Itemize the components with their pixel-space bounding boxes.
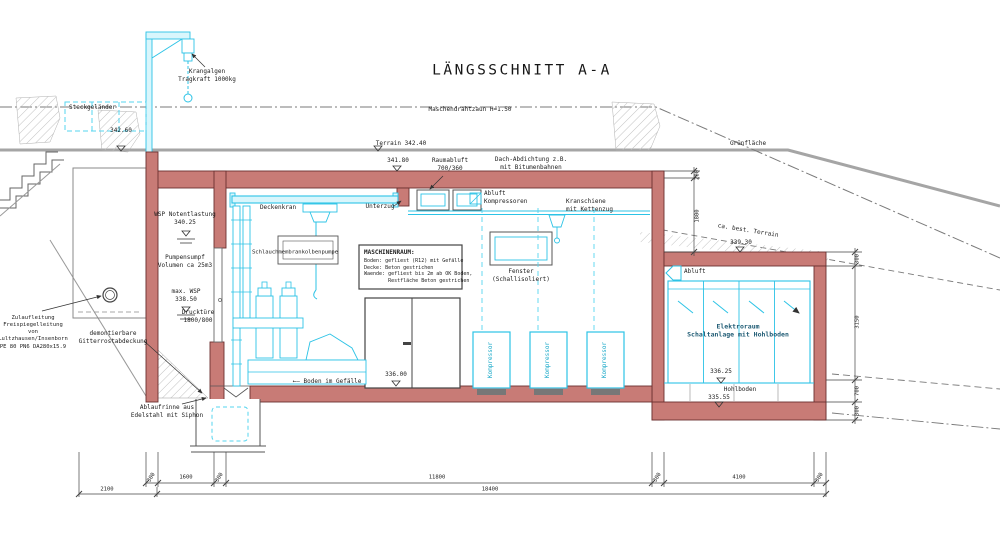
- crane-trolley: [303, 204, 337, 212]
- label-boden-gefaelle: ←– Boden im Gefälle: [293, 378, 362, 386]
- maschinenraum-title: MASCHINENRAUM:: [364, 249, 415, 257]
- level-342-60: 342.60: [110, 127, 132, 135]
- label-zulaufleitung: Zulaufleitung Freispiegelleitung von Lul…: [0, 315, 68, 351]
- label-pumpensumpf: Pumpensumpf Volumen ca 25m3: [158, 254, 212, 270]
- dim-right-700: 700: [854, 386, 861, 396]
- machine-room-right-wall: [652, 171, 664, 420]
- label-terrain: Terrain 342.40: [376, 140, 427, 148]
- hose-diaphragm-piston-pump: [231, 206, 366, 386]
- label-abluft: Abluft: [684, 268, 706, 276]
- crane-cable-hook: [314, 290, 317, 299]
- inlet-chamber: [50, 168, 146, 396]
- unterzug-beam: [397, 188, 409, 206]
- crane-beam: [232, 196, 398, 203]
- double-door: [365, 298, 460, 388]
- pump-motor: [306, 334, 358, 360]
- pressure-door: [214, 248, 222, 342]
- label-kompressor-1: Kompressor: [487, 342, 495, 378]
- roof-vents: [417, 190, 481, 210]
- riser-pipe-1: [233, 206, 240, 386]
- label-gruenflaeche: Grünfläche: [730, 140, 766, 148]
- label-raumabluft: Raumabluft 700/360: [432, 157, 468, 173]
- manifold-pipe: [233, 318, 303, 328]
- level-341-80: 341.80: [387, 157, 409, 165]
- dim-18400: 18400: [482, 486, 499, 493]
- drawing-title: LÄNGSSCHNITT A-A: [432, 62, 612, 81]
- label-kranschiene: Kranschiene mit Kettenzug: [566, 198, 613, 214]
- dim-11800: 11800: [429, 474, 446, 481]
- label-kompressor-3: Kompressor: [601, 342, 609, 378]
- dim-right-300-a: 300: [854, 254, 861, 264]
- label-ablaufrinne: Ablaufrinne aus Edelstahl mit Siphon: [131, 404, 203, 420]
- label-schlauchpumpe: Schlauchmembrankolbenpumpe: [252, 249, 338, 256]
- label-krangalgen: Krangalgen Tragkraft 1000kg: [178, 68, 236, 84]
- inlet-pipe-section: [103, 288, 117, 302]
- label-unterzug: Unterzug: [366, 203, 395, 211]
- label-wsp-notentlastung: WSP Notentlastung 340.25: [154, 211, 215, 227]
- label-deckenkran: Deckenkran: [260, 204, 296, 212]
- label-hohlboden: Hohlboden: [724, 386, 757, 394]
- level-336-25: 336.25: [710, 368, 732, 376]
- dim-4100: 4100: [732, 474, 745, 481]
- exhaust-vent-icon: [666, 266, 681, 280]
- door-handle: [403, 342, 411, 345]
- maschinenraum-spec: Boden: gefliest (R12) mit Gefälle Decke:…: [364, 258, 472, 284]
- label-fenster: Fenster (Schallisoliert): [492, 268, 550, 284]
- label-dach-abdichtung: Dach-Abdichtung z.B. mit Bitumenbahnen: [495, 156, 567, 172]
- section-drawing-sheet: LÄNGSSCHNITT A-A Krangalgen Tragkraft 10…: [0, 0, 1000, 540]
- level-336-00: 336.00: [385, 371, 407, 379]
- left-wall: [146, 152, 158, 402]
- label-demontierbare: demontierbare Gitterrostabdeckung: [79, 330, 148, 346]
- dim-1600: 1600: [179, 474, 192, 481]
- chain-hoist: [549, 215, 565, 227]
- dim-2100: 2100: [100, 486, 113, 493]
- dim-right-3150: 3150: [854, 315, 861, 328]
- label-max-wsp: max. WSP 338.50: [172, 288, 201, 304]
- sump-divider-lower: [210, 342, 224, 402]
- crane-hoist-block: [182, 39, 194, 53]
- window-soundproof: [490, 232, 552, 265]
- label-kompressor-2: Kompressor: [544, 342, 552, 378]
- crane-gallows: [146, 32, 194, 157]
- crane-hook: [184, 94, 192, 102]
- label-steckgelaender: Steckgeländer: [69, 104, 116, 112]
- stairs: [0, 152, 64, 216]
- dim-step-200: 200: [694, 170, 701, 180]
- label-drucktuere: Drucktüre 1800/800: [182, 309, 215, 325]
- sump-divider-upper: [214, 171, 226, 248]
- level-335-55: 335.55: [708, 394, 730, 402]
- dim-step-1800: 1800: [694, 209, 701, 222]
- riser-pipe-2: [243, 206, 250, 318]
- dim-right-300-b: 300: [854, 406, 861, 416]
- label-abluft-kompressoren: Abluft Kompressoren: [484, 190, 527, 206]
- label-maschendrahtzaun: Maschendrahtzaun H=1.50: [428, 106, 511, 114]
- level-339-30: 339.30: [730, 239, 752, 247]
- elektro-floor-slab: [652, 402, 826, 420]
- elektro-right-wall: [814, 266, 826, 420]
- label-elektroraum: Elektroraum Schaltanlage mit Hohlboden: [687, 323, 789, 340]
- elektro-roof-slab: [664, 252, 826, 266]
